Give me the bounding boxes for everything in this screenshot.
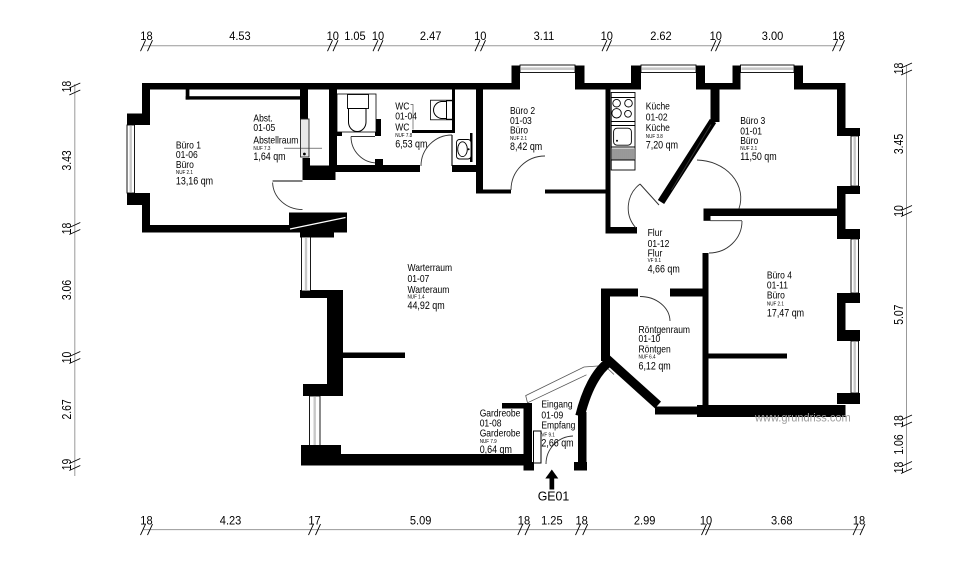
svg-text:10: 10 bbox=[700, 514, 713, 528]
svg-text:01-10: 01-10 bbox=[639, 334, 661, 345]
svg-text:3.45: 3.45 bbox=[891, 134, 906, 154]
svg-text:Abstellraum: Abstellraum bbox=[253, 135, 298, 146]
svg-text:18: 18 bbox=[832, 29, 845, 43]
svg-text:18: 18 bbox=[59, 81, 74, 93]
svg-text:10: 10 bbox=[59, 352, 74, 364]
svg-text:8,42 qm: 8,42 qm bbox=[510, 141, 542, 153]
svg-text:10: 10 bbox=[891, 205, 906, 217]
svg-text:Küche: Küche bbox=[646, 123, 670, 134]
svg-text:Büro: Büro bbox=[767, 291, 785, 302]
svg-text:Eingang: Eingang bbox=[541, 400, 572, 411]
svg-text:6,53 qm: 6,53 qm bbox=[395, 138, 427, 150]
svg-text:3.06: 3.06 bbox=[59, 280, 74, 300]
svg-text:2.99: 2.99 bbox=[634, 514, 656, 528]
svg-text:3.00: 3.00 bbox=[762, 29, 784, 43]
svg-text:1.25: 1.25 bbox=[541, 514, 563, 528]
svg-text:0,64 qm: 0,64 qm bbox=[480, 444, 512, 456]
svg-text:WC: WC bbox=[395, 122, 409, 133]
svg-text:GE01: GE01 bbox=[538, 489, 570, 504]
svg-text:19: 19 bbox=[59, 459, 74, 471]
svg-text:18: 18 bbox=[518, 514, 531, 528]
svg-text:1,64 qm: 1,64 qm bbox=[253, 151, 285, 163]
svg-text:17,47 qm: 17,47 qm bbox=[767, 307, 804, 319]
svg-text:2,66 qm: 2,66 qm bbox=[541, 437, 573, 449]
svg-text:18: 18 bbox=[853, 514, 866, 528]
svg-text:17: 17 bbox=[308, 514, 321, 528]
svg-text:Empfang: Empfang bbox=[541, 421, 575, 432]
svg-text:3.68: 3.68 bbox=[771, 514, 793, 528]
svg-text:10: 10 bbox=[710, 29, 723, 43]
svg-text:4,66 qm: 4,66 qm bbox=[648, 264, 680, 276]
svg-text:18: 18 bbox=[891, 415, 906, 427]
svg-text:3.43: 3.43 bbox=[59, 150, 74, 170]
svg-text:10: 10 bbox=[601, 29, 614, 43]
svg-text:10: 10 bbox=[327, 29, 340, 43]
svg-text:18: 18 bbox=[140, 514, 153, 528]
svg-text:01-05: 01-05 bbox=[253, 123, 275, 134]
svg-text:18: 18 bbox=[891, 462, 906, 474]
svg-text:11,50 qm: 11,50 qm bbox=[740, 151, 777, 163]
svg-text:44,92 qm: 44,92 qm bbox=[408, 300, 445, 312]
svg-text:1.06: 1.06 bbox=[891, 434, 906, 454]
svg-text:4.53: 4.53 bbox=[229, 29, 251, 43]
svg-text:18: 18 bbox=[59, 223, 74, 235]
svg-text:7,20 qm: 7,20 qm bbox=[646, 139, 678, 151]
svg-text:18: 18 bbox=[140, 29, 153, 43]
svg-text:10: 10 bbox=[372, 29, 385, 43]
svg-text:01-07: 01-07 bbox=[408, 274, 430, 285]
svg-text:01-04: 01-04 bbox=[395, 112, 417, 123]
svg-text:2.47: 2.47 bbox=[420, 29, 442, 43]
svg-text:www.grundriss.com: www.grundriss.com bbox=[754, 411, 851, 425]
svg-text:Küche: Küche bbox=[646, 102, 670, 113]
svg-text:01-09: 01-09 bbox=[541, 410, 563, 421]
svg-text:5.09: 5.09 bbox=[410, 514, 432, 528]
svg-text:1.05: 1.05 bbox=[344, 29, 366, 43]
svg-text:2.62: 2.62 bbox=[650, 29, 672, 43]
svg-text:10: 10 bbox=[474, 29, 487, 43]
svg-text:2.67: 2.67 bbox=[59, 399, 74, 419]
svg-text:Flur: Flur bbox=[648, 228, 663, 239]
svg-text:4.23: 4.23 bbox=[220, 514, 242, 528]
svg-text:13,16 qm: 13,16 qm bbox=[176, 175, 213, 187]
svg-text:Warterraum: Warterraum bbox=[408, 263, 453, 274]
svg-text:18: 18 bbox=[576, 514, 589, 528]
svg-text:3.11: 3.11 bbox=[534, 29, 555, 43]
svg-text:6,12 qm: 6,12 qm bbox=[639, 360, 671, 372]
svg-text:5.07: 5.07 bbox=[891, 305, 906, 325]
svg-text:18: 18 bbox=[891, 63, 906, 75]
